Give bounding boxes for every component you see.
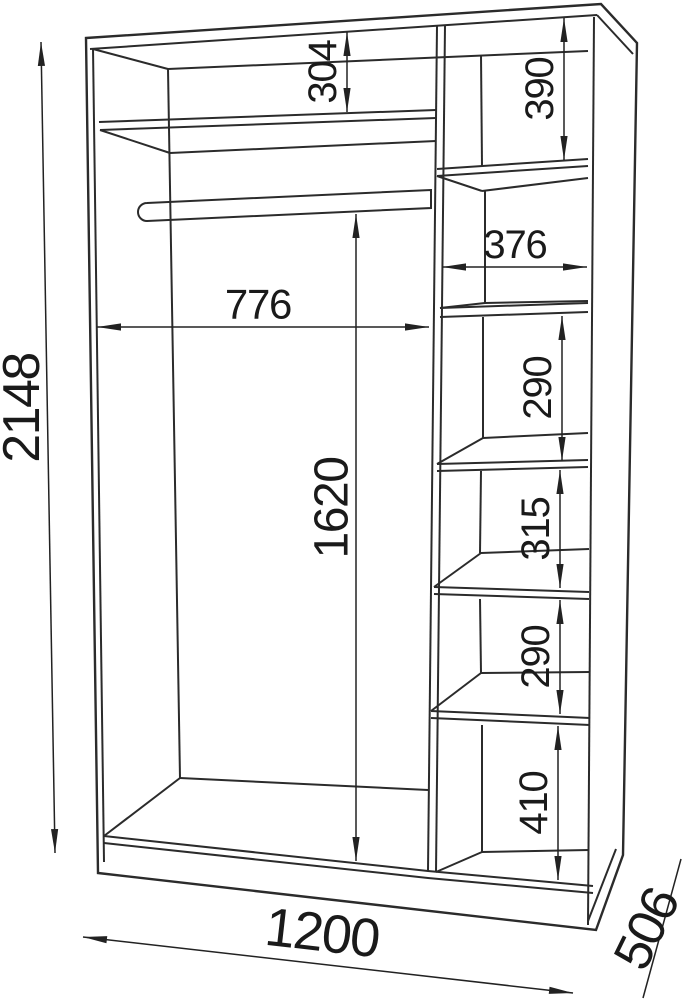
compartment-1-back-edge [481,55,482,166]
right-shelf-2 [440,301,588,317]
dim-right-compartment-middle-label: 315 [514,497,558,560]
compartment-5-back-edge [480,599,481,673]
dim-hanging-space-height-label: 1620 [306,457,359,558]
dim-right-column-width-label: 376 [483,223,546,267]
right-shelf-5 [431,672,590,725]
back-left-corner-edge [168,69,180,778]
center-divider [428,25,445,872]
left-top-shelf [99,110,436,153]
right-shelf-1 [437,159,588,191]
dim-top-shelf-drop-label: 304 [301,39,345,103]
right-inner-edge [588,17,594,925]
dim-right-bottom-compartment-label: 410 [512,771,556,834]
dimension-labels-group: 2148 304 390 376 290 315 290 410 776 162… [0,39,684,978]
left-panel-inner-edge [93,48,104,862]
dim-right-compartment-upper-label: 290 [516,356,560,419]
dim-right-top-compartment-label: 390 [518,57,562,120]
dim-overall-height-label: 2148 [0,353,51,462]
dim-left-section-width-label: 776 [225,281,291,328]
right-shelf-4 [434,549,589,599]
dim-overall-width-label: 1200 [262,897,382,969]
wardrobe-technical-drawing: 2148 304 390 376 290 315 290 410 776 162… [0,0,684,1000]
ceiling-left-diagonal [93,49,168,69]
dim-right-compartment-lower-label: 290 [514,625,558,688]
right-shelf-3 [437,433,588,471]
compartment-4-back-edge [480,471,481,553]
hanging-rod [138,190,431,221]
